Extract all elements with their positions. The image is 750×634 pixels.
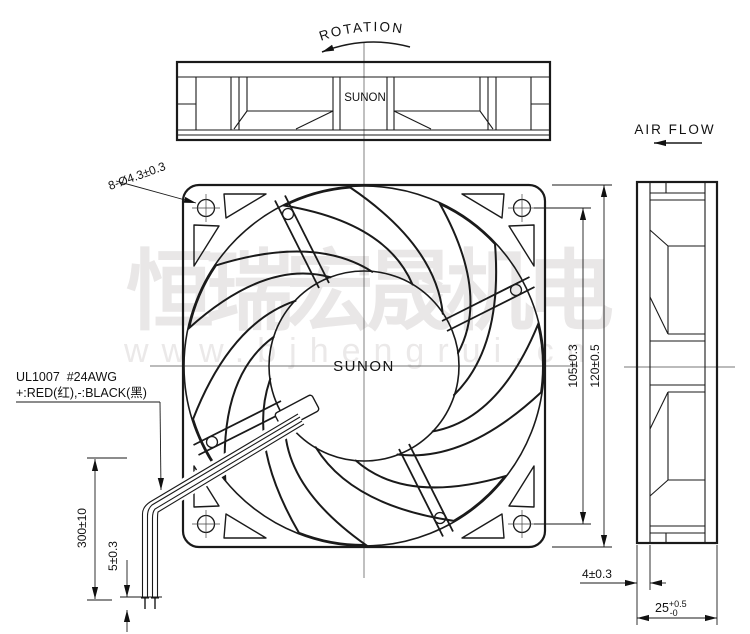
airflow-label-group: AIR FLOW xyxy=(634,122,715,143)
top-view-brand-label: SUNON xyxy=(344,92,386,104)
airflow-label: AIR FLOW xyxy=(634,122,715,137)
wire-spec-line2: +:RED(红),-:BLACK(黑) xyxy=(16,385,147,400)
dim-frame-thickness: 25+0.5-0 xyxy=(637,545,717,625)
rotation-label-group: ROTATION xyxy=(317,19,410,52)
wire-spec-label: UL1007 #24AWG +:RED(红),-:BLACK(黑) xyxy=(16,370,161,490)
front-view: SUNON xyxy=(141,162,573,609)
dim-wire-length-text: 300±10 xyxy=(75,508,89,548)
dim-hole-pitch-text: 105±0.3 xyxy=(566,344,580,388)
dim-frame-size-text: 120±0.5 xyxy=(588,344,602,388)
dim-wire-strip-text: 5±0.3 xyxy=(106,541,120,571)
dim-inset-depth: 4±0.3 xyxy=(580,545,666,625)
rotation-arrow-icon xyxy=(322,42,410,52)
dim-inset-depth-text: 4±0.3 xyxy=(582,567,612,581)
dim-mounting-holes-text: 8-Ø4.3±0.3 xyxy=(106,159,167,193)
side-view xyxy=(637,182,717,543)
top-view: SUNON xyxy=(177,62,550,140)
wire-knockout xyxy=(146,419,301,600)
dim-wire-length: 300±10 xyxy=(75,458,127,600)
hub-brand-label: SUNON xyxy=(333,358,395,375)
drawing-canvas: 恒瑞宏晟机电 www.bjhengrui.cn xyxy=(0,0,750,634)
fan-technical-drawing: ROTATION SUNON xyxy=(0,0,750,634)
wire-spec-line1: UL1007 #24AWG xyxy=(16,370,117,384)
dim-frame-thickness-text: 25+0.5-0 xyxy=(655,599,687,618)
rotation-label: ROTATION xyxy=(317,19,405,44)
